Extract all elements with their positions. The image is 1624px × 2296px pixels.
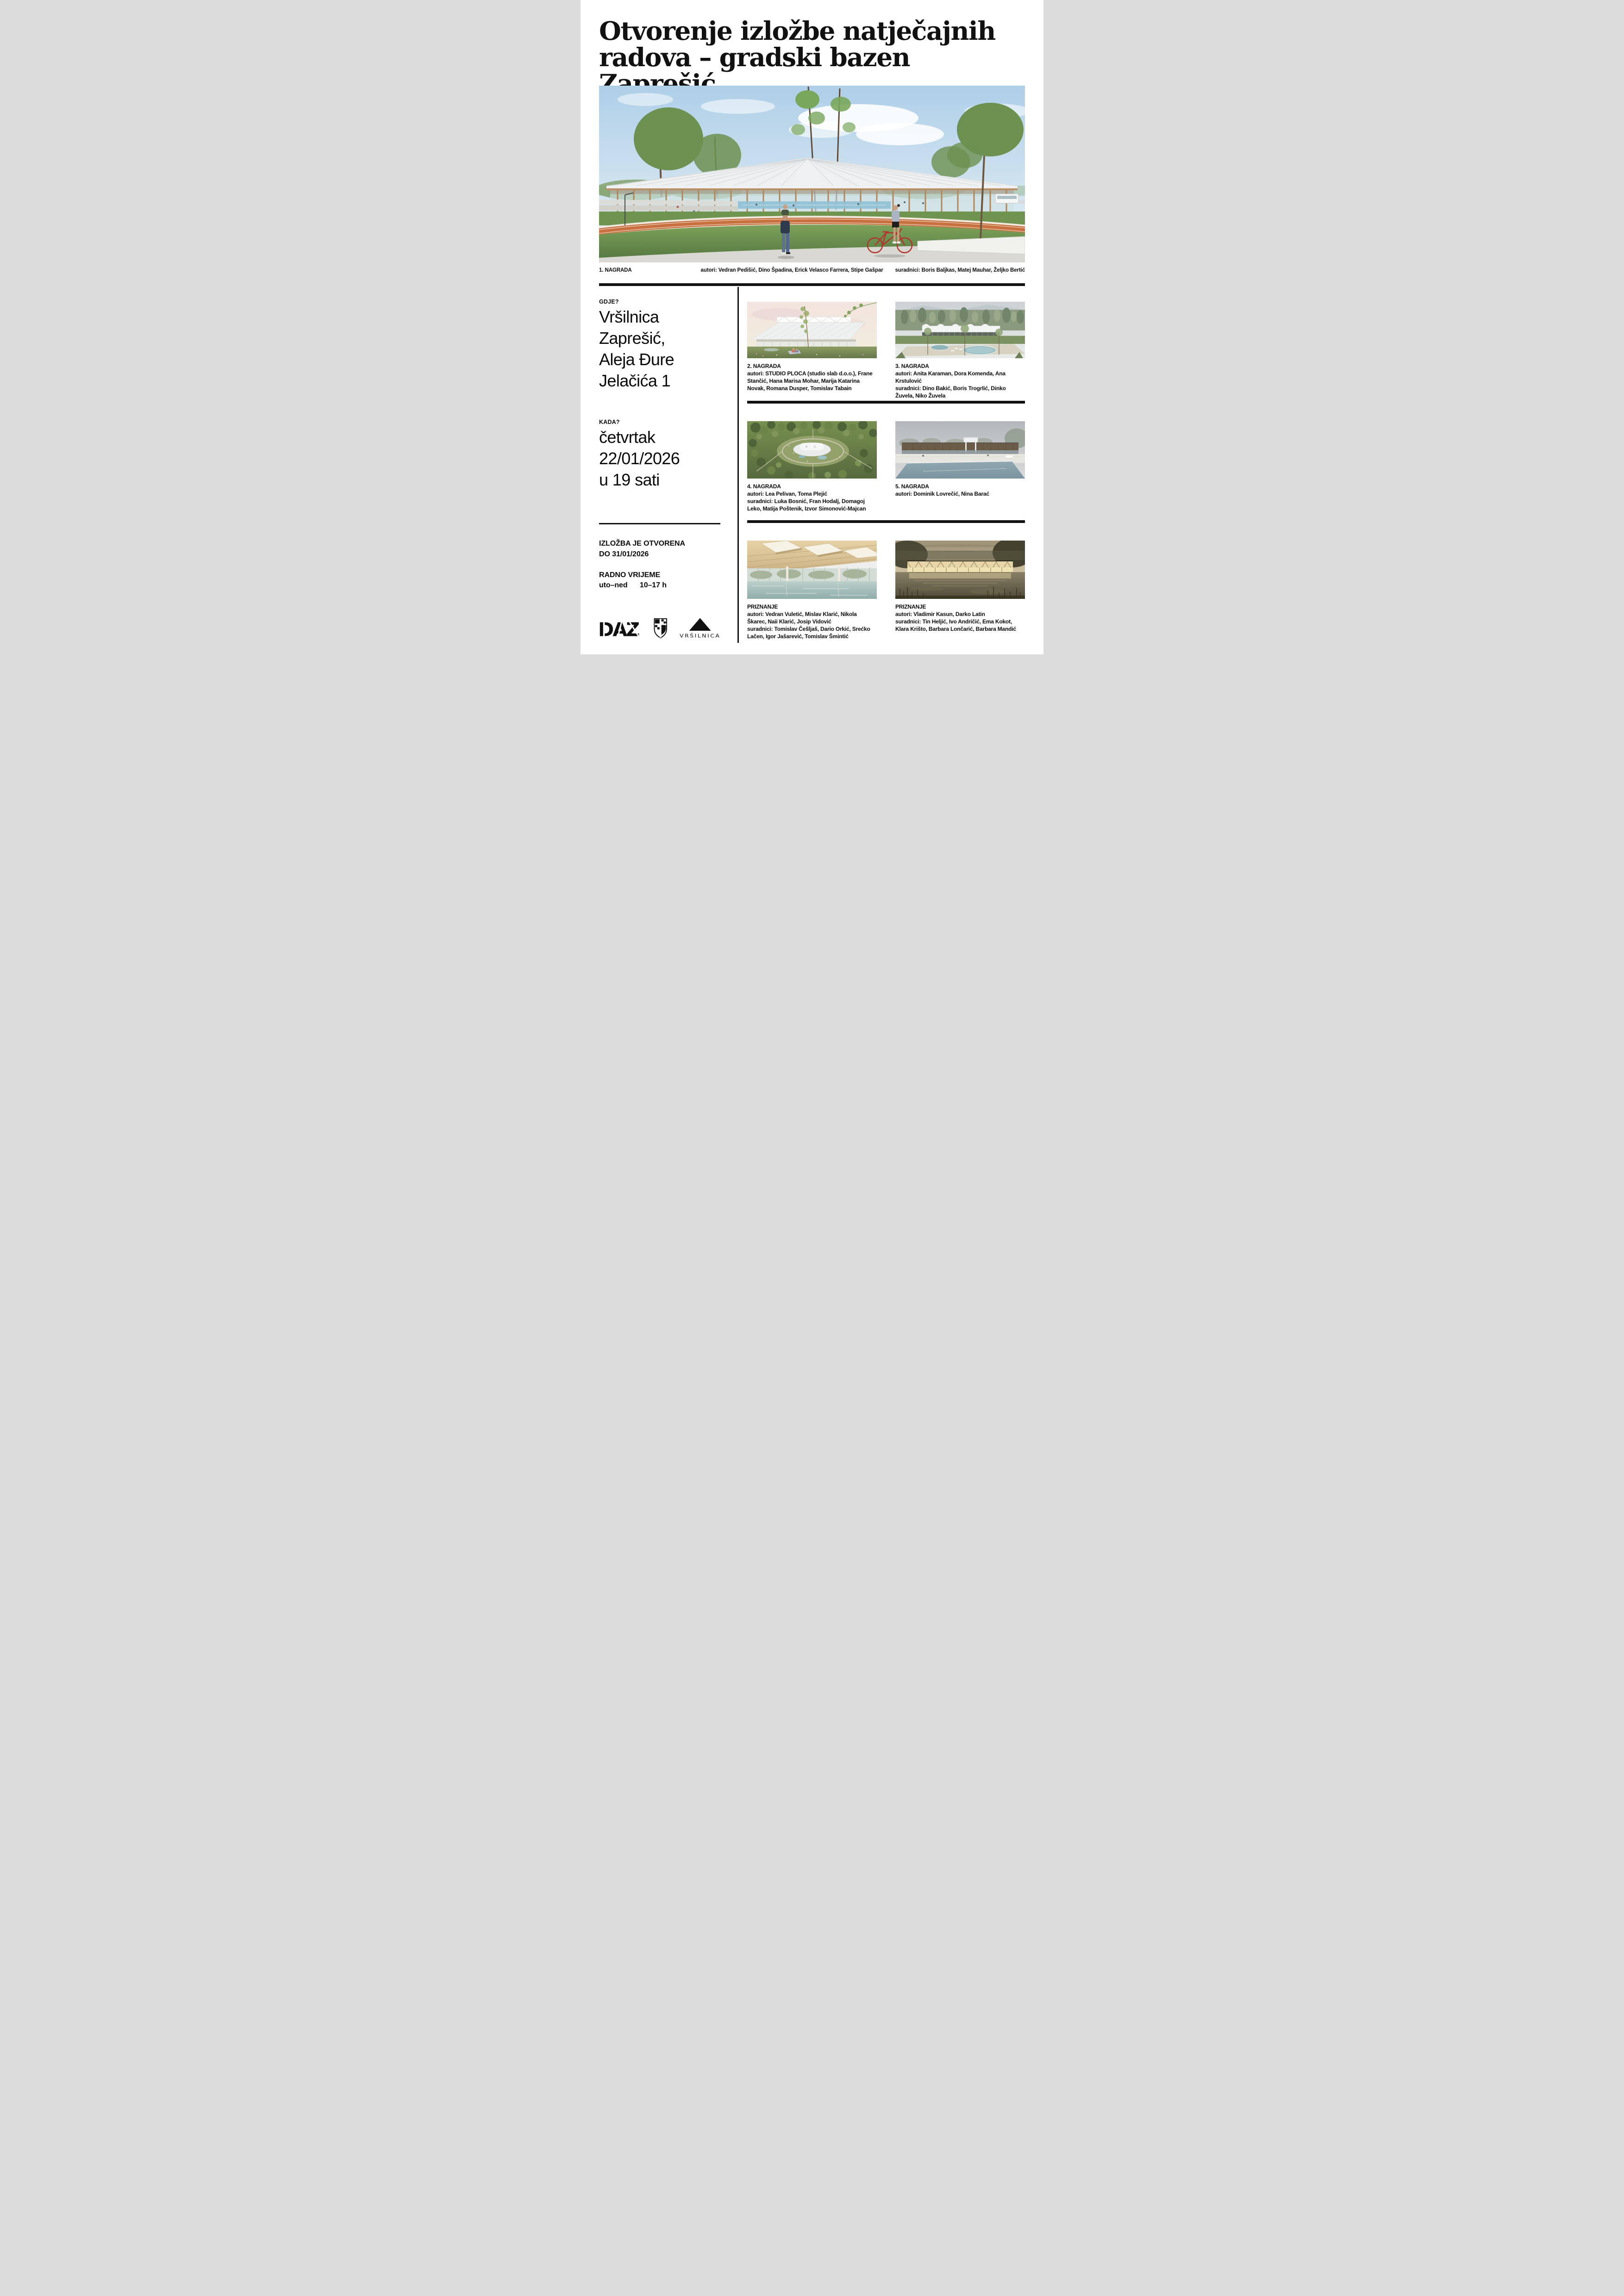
venue-line: Vršilnica [599, 306, 733, 328]
entry-award: PRIZNANJE [895, 603, 1025, 610]
hours-label: RADNO VRIJEME [599, 570, 660, 580]
exhibition-poster: Otvorenje izložbe natječajnih radova – g… [581, 0, 1043, 654]
left-divider [599, 523, 720, 524]
hero-render-illustration [599, 86, 1025, 262]
entry-collaborators: suradnici: Tin Heljić, Ivo Andričić, Ema… [895, 618, 1025, 633]
entry-collaborators: suradnici: Tomislav Češljaš, Dario Orkić… [747, 625, 877, 640]
datetime-line: 22/01/2026 [599, 448, 733, 469]
entry-2-nagrada: 2. NAGRADA autori: STUDIO PLOCA (studio … [747, 302, 877, 392]
open-until-line-1: IZLOŽBA JE OTVORENA [599, 538, 729, 549]
entry-collaborators: suradnici: Dino Bakić, Boris Trogrlić, D… [895, 385, 1025, 399]
entry-authors: autori: Vedran Vuletić, Mislav Klarić, N… [747, 610, 877, 625]
venue-address: Vršilnica Zaprešić, Aleja Đure Jelačića … [599, 306, 733, 392]
title-line-1: Otvorenje izložbe natječajnih [599, 18, 1032, 44]
entry-collaborators: suradnici: Luka Bosnić, Fran Hodalj, Dom… [747, 498, 877, 512]
grid-divider-2 [747, 520, 1025, 523]
datetime-line: četvrtak [599, 427, 733, 448]
entry-2-image [747, 302, 877, 358]
entry-authors: autori: Lea Pelivan, Toma Plejić [747, 490, 877, 498]
entry-priznanje-1-image [747, 541, 877, 599]
venue-line: Jelačića 1 [599, 370, 733, 392]
entry-priznanje-2: PRIZNANJE autori: Vladimir Kasun, Darko … [895, 541, 1025, 633]
venue-line: Zaprešić, [599, 328, 733, 349]
vrsilnica-triangle-icon [689, 618, 711, 630]
hero-caption: 1. NAGRADA autori: Vedran Pedišić, Dino … [599, 267, 1025, 274]
entry-priznanje-2-image [895, 541, 1025, 599]
logo-row: DAZ VRŠILNICA [599, 617, 720, 639]
column-divider [737, 287, 739, 643]
page-title: Otvorenje izložbe natječajnih radova – g… [599, 18, 1032, 97]
entry-priznanje-1: PRIZNANJE autori: Vedran Vuletić, Mislav… [747, 541, 877, 640]
entry-5-nagrada: 5. NAGRADA autori: Dominik Lovrečić, Nin… [895, 421, 1025, 498]
main-divider [599, 283, 1025, 286]
daz-logo: DAZ [599, 620, 642, 639]
entry-4-image [747, 421, 877, 479]
event-datetime: četvrtak 22/01/2026 u 19 sati [599, 427, 733, 491]
hero-collaborators: suradnici: Boris Baljkas, Matej Mauhar, … [895, 267, 1025, 274]
entry-award: 4. NAGRADA [747, 483, 877, 490]
hours-days: uto–ned [599, 581, 628, 589]
hero-award-label: 1. NAGRADA [599, 267, 632, 274]
when-label: KADA? [599, 419, 620, 425]
entry-authors: autori: STUDIO PLOCA (studio slab d.o.o.… [747, 370, 877, 392]
entry-4-nagrada: 4. NAGRADA autori: Lea Pelivan, Toma Ple… [747, 421, 877, 512]
opening-hours: uto–ned 10–17 h [599, 581, 667, 590]
grid-divider-1 [747, 401, 1025, 404]
entry-3-nagrada: 3. NAGRADA autori: Anita Karaman, Dora K… [895, 302, 1025, 399]
datetime-line: u 19 sati [599, 469, 733, 491]
open-until: IZLOŽBA JE OTVORENA DO 31/01/2026 [599, 538, 729, 560]
entry-award: 3. NAGRADA [895, 362, 1025, 370]
entry-authors: autori: Vladimir Kasun, Darko Latin [895, 610, 1025, 618]
venue-line: Aleja Đure [599, 349, 733, 370]
entry-authors: autori: Anita Karaman, Dora Komenda, Ana… [895, 370, 1025, 385]
entry-5-image [895, 421, 1025, 479]
open-until-line-2: DO 31/01/2026 [599, 549, 729, 560]
entry-award: 2. NAGRADA [747, 362, 877, 370]
entry-award: PRIZNANJE [747, 603, 877, 610]
hours-time: 10–17 h [640, 581, 667, 589]
zapresic-coat-of-arms-icon [654, 618, 667, 639]
entry-3-image [895, 302, 1025, 358]
vrsilnica-logo-text: VRŠILNICA [680, 633, 720, 639]
vrsilnica-logo: VRŠILNICA [680, 618, 720, 639]
entry-award: 5. NAGRADA [895, 483, 1025, 490]
where-label: GDJE? [599, 299, 619, 305]
hero-authors: autori: Vedran Pedišić, Dino Špadina, Er… [701, 267, 883, 274]
hero-image [599, 86, 1025, 262]
entry-authors: autori: Dominik Lovrečić, Nina Barać [895, 490, 1025, 498]
